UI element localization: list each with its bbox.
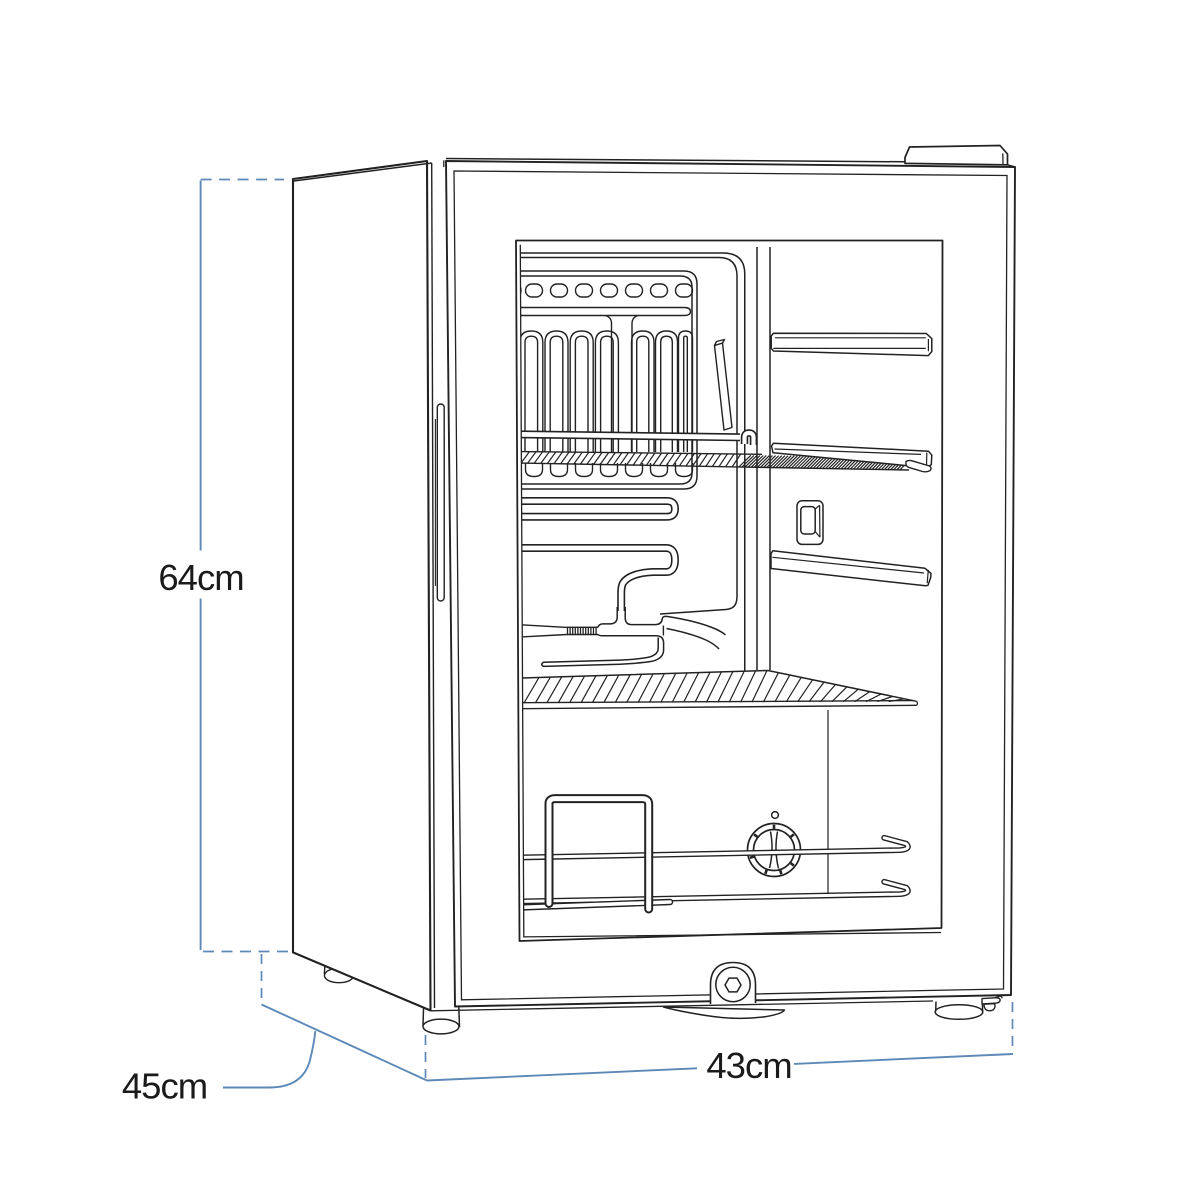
svg-text:45cm: 45cm — [122, 1066, 207, 1107]
svg-text:64cm: 64cm — [158, 557, 243, 598]
svg-text:43cm: 43cm — [706, 1045, 791, 1086]
